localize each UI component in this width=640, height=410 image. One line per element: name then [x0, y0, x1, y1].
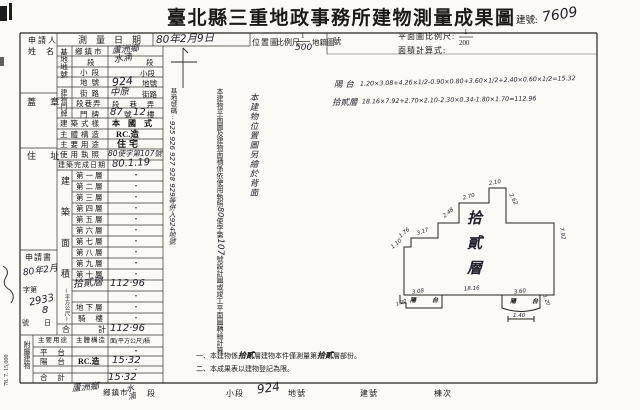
annex-header-structure: 主體構造 — [76, 338, 106, 345]
plan-dim: 18.16 — [464, 286, 480, 293]
floor-label: 第四層 — [76, 205, 105, 213]
application-day-suffix: 日 — [44, 320, 51, 327]
applicant-name-label-2: 姓 名 — [28, 48, 58, 56]
plan-scale-label: 平面圖比例尺: — [398, 33, 455, 41]
footer-section-value: 水湳 — [125, 383, 137, 406]
plan-dim: 3.60 — [514, 289, 527, 296]
survey-form-page: 臺北縣三重地政事務所建物測量成果圖 建號: 7609 位置圖 比例尺: 1 50… — [0, 0, 640, 410]
site-group-label: 基地地號 — [60, 48, 68, 88]
remark-1-text: 一、本建物係 — [196, 352, 238, 360]
building-no-label: 建號: — [516, 17, 538, 27]
arcade-label: 騎 樓 — [78, 315, 107, 323]
plan-source-text-3: 號設計圖或竣工平面圖轉繪計算 — [216, 255, 224, 353]
floor-label: 第五層 — [76, 216, 105, 224]
footer-lot-label: 地號 — [288, 390, 306, 398]
plan-dim: 1.76 — [399, 228, 412, 240]
remark-2: 二、本成果表以建物登記為限。 — [196, 366, 294, 373]
floor-total-value: 112·96 — [110, 324, 145, 334]
scan-artifact — [0, 57, 4, 66]
plan-balcony-left-label: 陽 台 — [410, 298, 445, 304]
floor-label: 第二層 — [76, 183, 105, 191]
remark-1: 一、本建物係拾貳層建物本件僅測量第拾貳層部份。 — [196, 352, 361, 360]
floor-value: · — [128, 292, 144, 301]
annex-total-label: 合 計 — [40, 374, 69, 382]
annex-row-structure: RC.造 — [78, 358, 100, 366]
plan-dim: 1.20 — [395, 299, 407, 308]
annex-row-use: 平 台 — [40, 349, 69, 357]
floor-value: · — [128, 303, 144, 312]
plan-source-strip: 本建物平面圖及建物面積係依使用執照80使字第107號設計圖或竣工平面圖轉繪計算 — [197, 88, 224, 348]
footer-township-label: 鄉鎮市 — [103, 389, 129, 397]
footer-section-label: 段 — [147, 390, 155, 398]
plan-dim: 7.92 — [557, 227, 565, 240]
plan-source-year: 80 — [216, 207, 225, 217]
application-date: 80年2月 — [23, 265, 59, 279]
license-value: 80使字第107號 — [108, 150, 162, 158]
area-formula-label: 面積計算式: — [398, 47, 446, 55]
floor-label: 第八層 — [76, 249, 105, 257]
floor-value: · — [128, 248, 144, 257]
annex-total-value: 15·32 — [108, 373, 137, 383]
floor-area-group-label: 建築面積 — [60, 176, 69, 306]
floor-value: · — [128, 226, 144, 235]
application-day: 8 — [42, 306, 48, 316]
site-numbers-label: 基地號碼: — [169, 88, 176, 121]
lane-label: 段巷弄 — [76, 100, 102, 108]
plan-dim: 1.10 — [391, 239, 404, 251]
plan-dim: 1.40 — [513, 314, 525, 320]
basement-label: 地下層 — [76, 304, 105, 312]
township-label: 鄉鎮市 — [75, 48, 104, 56]
scale-denominator: 500 — [295, 44, 312, 53]
scan-artifact — [9, 3, 12, 20]
floor-area-unit-label: (平方公尺) — [63, 288, 69, 328]
floor-value: · — [128, 204, 144, 213]
floor-value: · — [128, 314, 144, 323]
doorplate-floor-suffix: 樓 — [147, 111, 155, 119]
plan-source-license-no: 107 — [215, 238, 225, 255]
scan-artifact — [0, 6, 7, 21]
floor-value: · — [128, 237, 144, 246]
floor-label: 第六層 — [76, 227, 105, 235]
plan-dim: 2.48 — [443, 208, 456, 220]
remark-1-text: 層建物本件僅測量第 — [254, 352, 317, 360]
footer-township-value: 蘆洲鄉 — [72, 383, 100, 394]
footer-building-no-label: 建號 — [360, 390, 378, 398]
footer-unit-label: 棟次 — [434, 390, 452, 398]
subsection-suffix: 小段 — [140, 70, 155, 78]
structure-label: 主體構造 — [60, 131, 102, 139]
street-value: 中原 — [110, 87, 130, 98]
lot-label: 地號 — [80, 79, 103, 87]
plan-dim: 2.62 — [507, 193, 518, 206]
application-label: 申請書 — [25, 254, 52, 262]
use-label: 主要用途 — [60, 141, 102, 149]
floor-total-label: 合 計 — [62, 326, 116, 334]
location-map-label: 位置圖 — [252, 39, 279, 47]
balcony-formula-label: 陽 台 — [334, 81, 354, 90]
plan-dim: 2.10 — [489, 180, 502, 188]
completion-value: 80.1.19 — [112, 158, 151, 170]
plan-dim: 2.70 — [462, 194, 475, 202]
floor-label: 第九層 — [76, 260, 105, 268]
completion-label: 建築完成日期 — [58, 162, 106, 169]
floor-value: · — [128, 259, 144, 268]
floor-value-12f: 112·96 — [110, 279, 145, 289]
section-value: 水湳 — [113, 54, 132, 66]
street-suffix: 街路 — [142, 91, 157, 99]
door-group-label: 建物門牌 — [60, 89, 67, 119]
footer-lot-value: 924 — [256, 380, 280, 395]
annex-header-use: 主要用途 — [38, 338, 68, 345]
use-value: 住宅 — [117, 140, 141, 149]
floor-label-12f: 拾貳層 — [73, 278, 104, 291]
floor-label: 第一層 — [76, 172, 105, 180]
applicant-name-label-1: 申請人 — [28, 37, 58, 45]
plan-scale-numerator: 1 — [464, 29, 468, 36]
form-print-code: 78. 7. 15,000 — [4, 326, 12, 386]
survey-date-value: 80年2月9日 — [156, 33, 215, 46]
floor12-formula-label: 拾貳層 — [332, 99, 358, 108]
lot-suffix: 地號 — [142, 80, 157, 88]
location-note: 本建物位置圖另繪於背面 — [227, 93, 257, 161]
floor-value: · — [128, 215, 144, 224]
floor-value: · — [128, 171, 144, 180]
application-no-label: 字第 — [23, 287, 37, 294]
plan-dim: 3.08 — [412, 289, 425, 296]
license-label: 使用執照 — [60, 151, 102, 159]
plan-balcony-right-label: 陽 台 — [510, 299, 545, 305]
section-label: 段 — [87, 59, 95, 67]
cadastral-map-label: 地籍圖 — [312, 39, 335, 47]
footer-subsection-label: 小段 — [226, 390, 244, 398]
style-label: 建築式樣 — [60, 120, 102, 128]
subsection-label: 小段 — [80, 69, 103, 77]
plan-source-text-2: 使字第 — [216, 217, 224, 238]
sheet-no-label: 號 — [333, 38, 341, 46]
floor-value: · — [128, 182, 144, 191]
scale-numerator: 1 — [301, 33, 305, 40]
floor-value: · — [128, 193, 144, 202]
annex-header-area: 面(平方公尺)積 — [110, 339, 150, 345]
structure-value: RC.造 — [116, 130, 139, 139]
street-label: 街路 — [80, 90, 103, 98]
remark-1-text: 層部份。 — [333, 352, 361, 360]
site-numbers-strip: 基地號碼:925 926 927 928 929等併入924地號 — [166, 88, 180, 340]
remark-1-floor: 拾貳 — [317, 351, 333, 360]
doorplate-no: 87 — [110, 108, 123, 118]
plan-source-text-1: 本建物平面圖及建物面積係依使用執照 — [216, 88, 224, 207]
annex-group-label: 附屬建物 — [23, 341, 30, 383]
floor12-formula: 18.16×7.92+2.70×2.10-2.30×0.34-1.80×1.70… — [362, 96, 536, 105]
plan-scale-denominator: 200 — [459, 40, 470, 47]
survey-date-label: 測量日期 — [78, 36, 150, 45]
style-value: 本 國 式 — [112, 120, 155, 128]
annex-row-use: 陽 台 — [40, 358, 69, 366]
doorplate-label: 門牌 — [80, 111, 103, 119]
floor-label: 第七層 — [76, 238, 105, 246]
building-no-value: 7609 — [541, 5, 578, 24]
floor-label: 第三層 — [76, 194, 105, 202]
section-suffix: 段 — [146, 59, 154, 67]
balcony-formula: 1.20×3.08+4.26×1/2-0.90×0.80+3.60×1/2+2.… — [360, 76, 576, 88]
page-title: 臺北縣三重地政事務所建物測量成果圖 — [167, 9, 516, 28]
plan-dim: 3.17 — [416, 228, 429, 237]
doorplate-no-suffix: 號 — [124, 111, 132, 119]
doorplate-floor: 12 — [133, 108, 146, 118]
remark-1-floor: 拾貳 — [238, 351, 254, 360]
site-numbers-value: 925 926 927 928 929等併入924地號 — [168, 121, 176, 245]
application-no-suffix: 號 — [22, 320, 29, 327]
